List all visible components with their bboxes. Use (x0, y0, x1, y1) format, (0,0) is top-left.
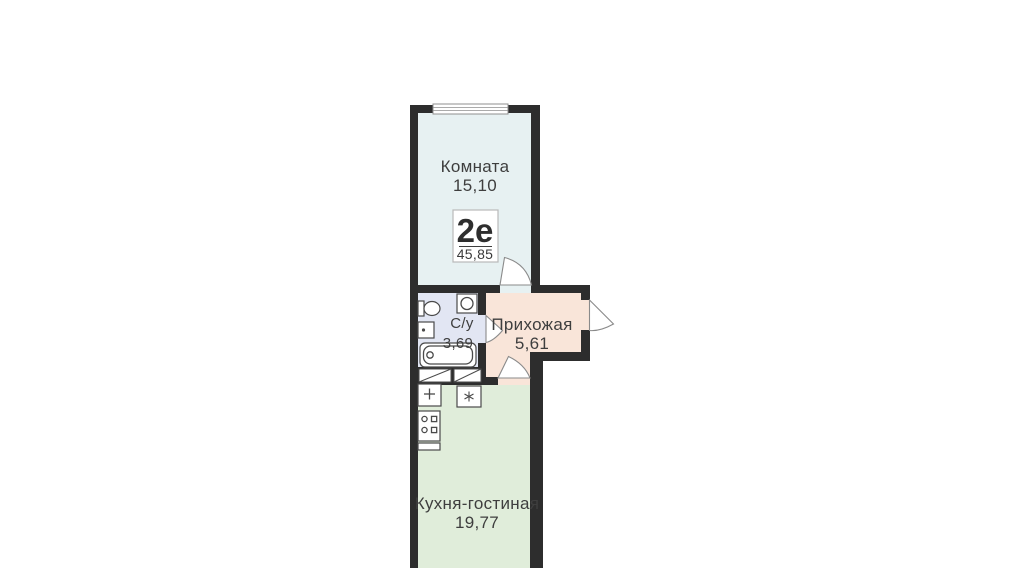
floorplan-canvas: Комната 15,10 С/у 3,69 Прихожая 5,61 Кух… (0, 0, 1024, 568)
wall-hallway-kitchen (486, 377, 498, 385)
wall-bathroom-right-upper (478, 293, 486, 315)
room-name-label: Комната (441, 157, 510, 176)
kitchen-area-label: 19,77 (455, 513, 499, 532)
entrance-door-swing (590, 300, 614, 331)
stove-icon (418, 411, 440, 450)
wall-room-right (531, 105, 540, 293)
wall-kitchen-right (530, 352, 543, 568)
hallway-area-label: 5,61 (515, 334, 549, 353)
wall-top-left-pier (410, 105, 433, 113)
wall-hallway-right-upper (581, 285, 590, 300)
room-area-label: 15,10 (453, 176, 497, 195)
washing-machine-icon (418, 322, 434, 338)
entrance-door-gap (581, 300, 590, 330)
bathroom-area-label: 3,69 (443, 335, 473, 352)
wall-hallway-bottom (540, 352, 590, 361)
apartment-total-area-label: 45,85 (457, 246, 494, 262)
kitchen-name-label: Кухня-гостиная (415, 494, 539, 513)
bathroom-door-gap (478, 315, 486, 343)
wall-room-bottom (410, 285, 500, 293)
vent-shaft-icon (454, 369, 481, 382)
apartment-badge: 2е 45,85 (453, 210, 498, 262)
kitchen-sink-icon (418, 384, 441, 406)
washbasin-icon (457, 294, 477, 313)
toilet-icon (418, 301, 440, 316)
appliance-star-icon (457, 386, 481, 407)
room-door-gap (500, 285, 531, 293)
bathroom-name-label: С/у (450, 315, 474, 332)
apartment-type-label: 2е (457, 212, 494, 249)
vent-shaft-icon (419, 369, 451, 382)
window-icon (433, 104, 508, 114)
hallway-name-label: Прихожая (491, 315, 572, 334)
floorplan-svg: Комната 15,10 С/у 3,69 Прихожая 5,61 Кух… (0, 0, 1024, 568)
